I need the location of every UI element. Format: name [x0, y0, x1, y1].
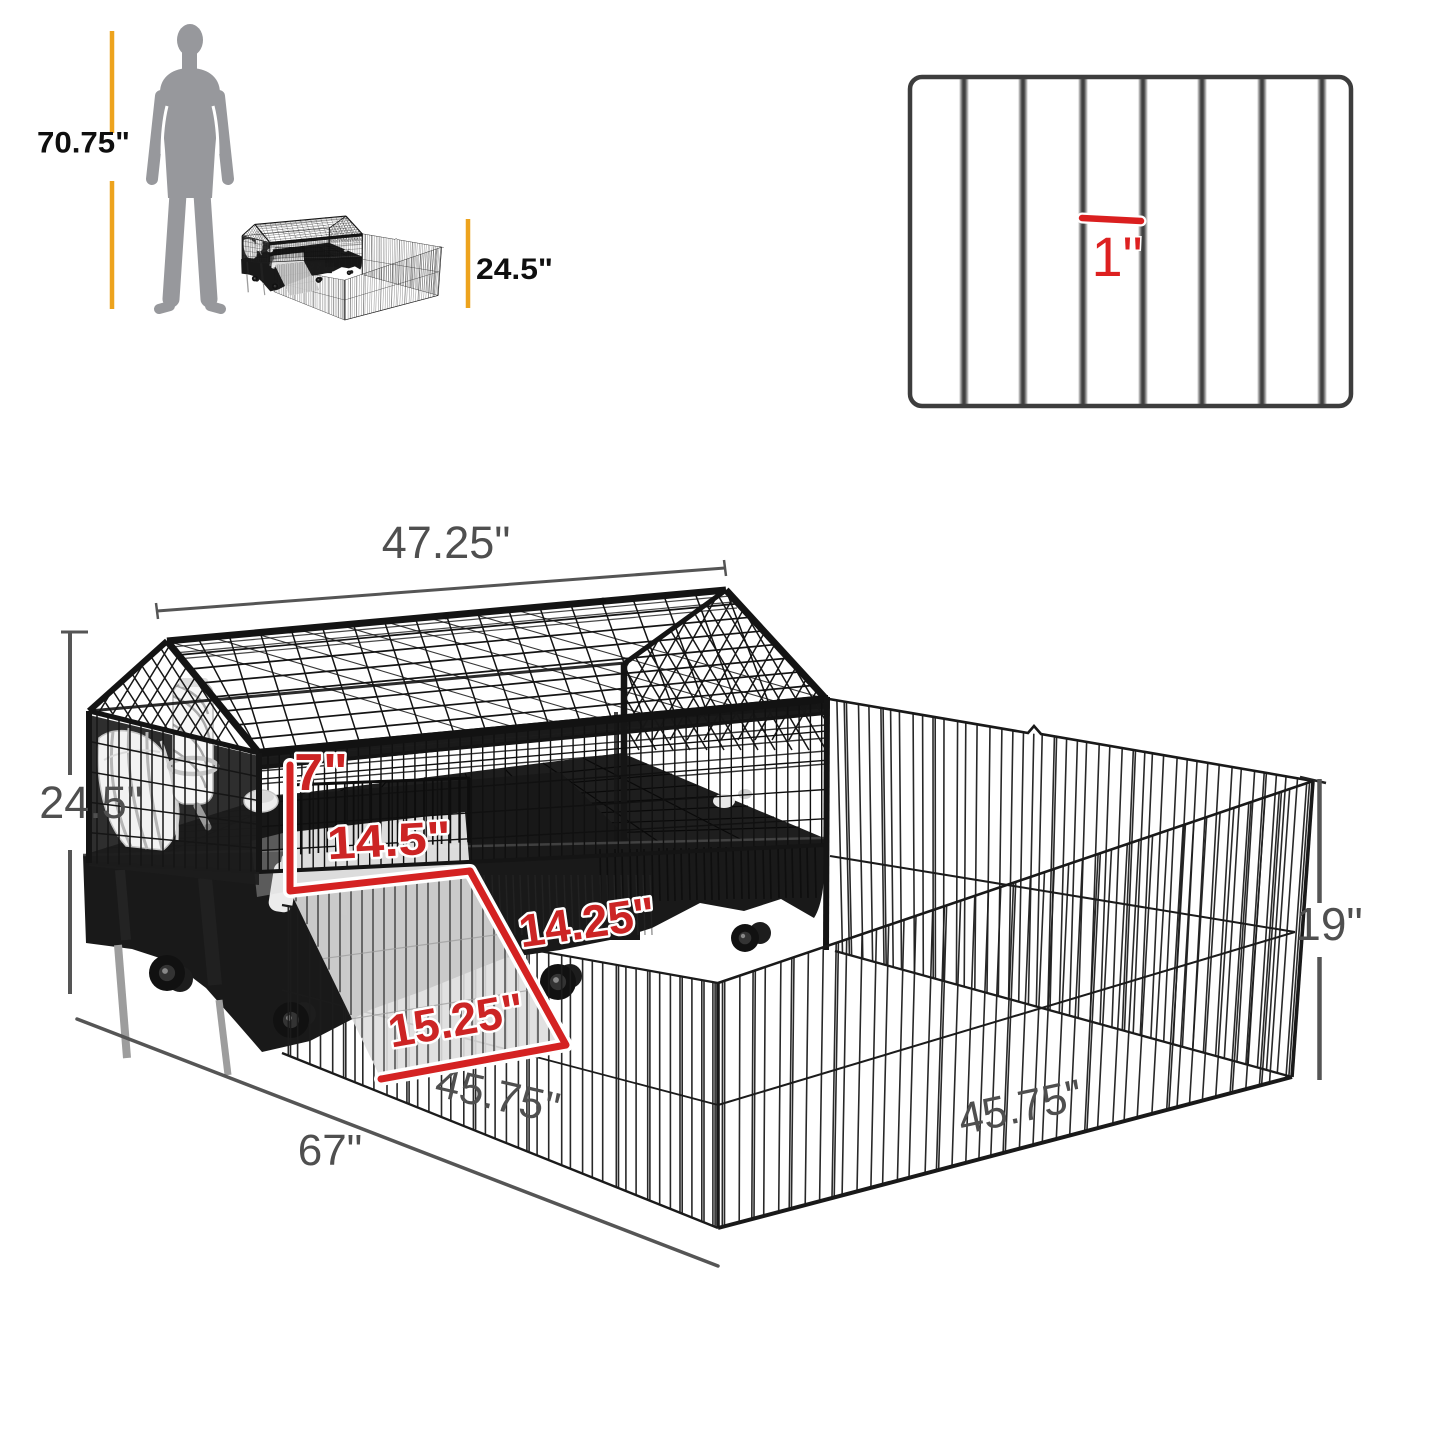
- svg-text:24.5": 24.5": [476, 253, 553, 286]
- svg-text:67": 67": [298, 1126, 363, 1175]
- svg-text:1": 1": [1091, 225, 1142, 288]
- svg-text:47.25": 47.25": [382, 517, 511, 568]
- svg-text:14.5": 14.5": [326, 811, 453, 869]
- svg-text:19": 19": [1295, 898, 1363, 950]
- svg-text:24.5": 24.5": [39, 777, 143, 828]
- svg-text:70.75": 70.75": [37, 127, 130, 160]
- svg-text:7": 7": [294, 744, 348, 802]
